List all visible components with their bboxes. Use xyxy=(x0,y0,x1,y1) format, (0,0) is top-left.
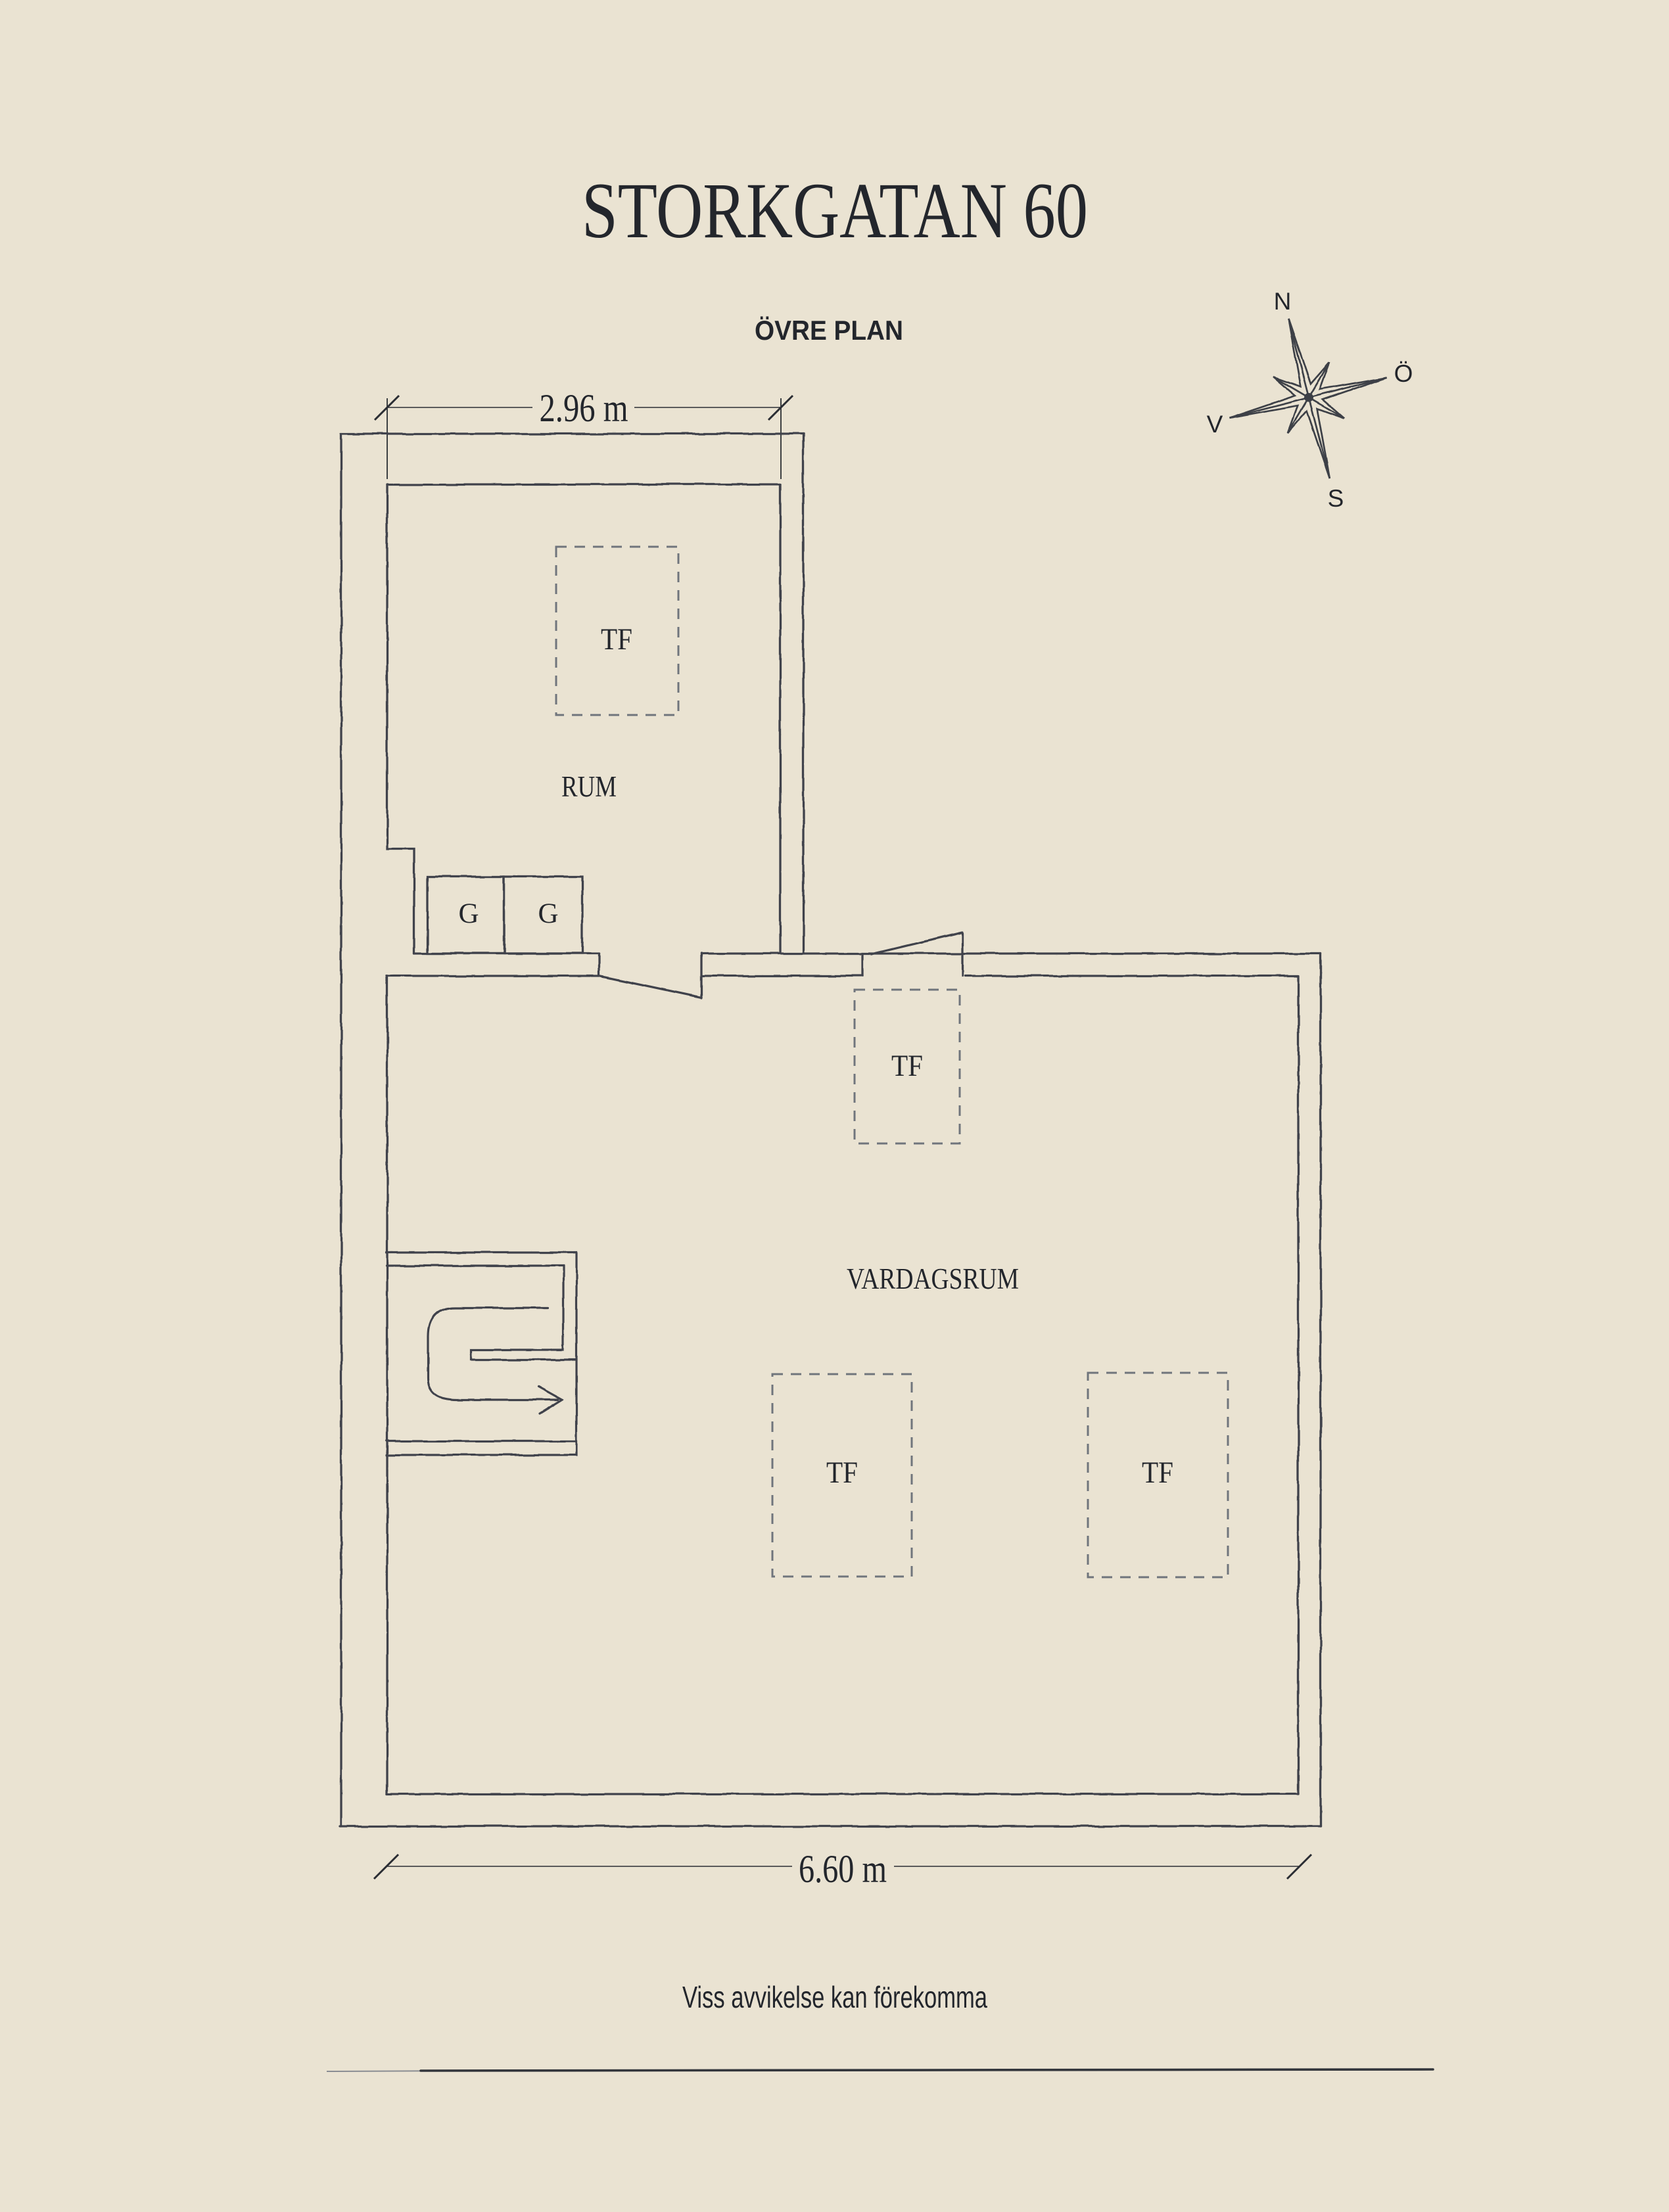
svg-text:TF: TF xyxy=(1142,1456,1173,1490)
svg-text:STORKGATAN 60: STORKGATAN 60 xyxy=(582,167,1088,255)
svg-text:RUM: RUM xyxy=(561,770,617,803)
svg-text:VARDAGSRUM: VARDAGSRUM xyxy=(847,1262,1019,1295)
svg-text:S: S xyxy=(1328,485,1344,512)
svg-text:TF: TF xyxy=(826,1456,858,1490)
svg-text:6.60 m: 6.60 m xyxy=(799,1847,887,1891)
svg-text:G: G xyxy=(538,898,558,929)
svg-text:V: V xyxy=(1207,411,1223,438)
svg-text:Viss avvikelse kan förekomma: Viss avvikelse kan förekomma xyxy=(682,1980,987,2014)
svg-text:G: G xyxy=(458,898,479,929)
svg-text:TF: TF xyxy=(601,622,632,657)
svg-text:TF: TF xyxy=(891,1049,923,1083)
svg-text:N: N xyxy=(1274,288,1292,315)
svg-text:2.96 m: 2.96 m xyxy=(540,386,628,430)
svg-text:ÖVRE PLAN: ÖVRE PLAN xyxy=(755,315,903,346)
svg-text:Ö: Ö xyxy=(1394,360,1413,387)
